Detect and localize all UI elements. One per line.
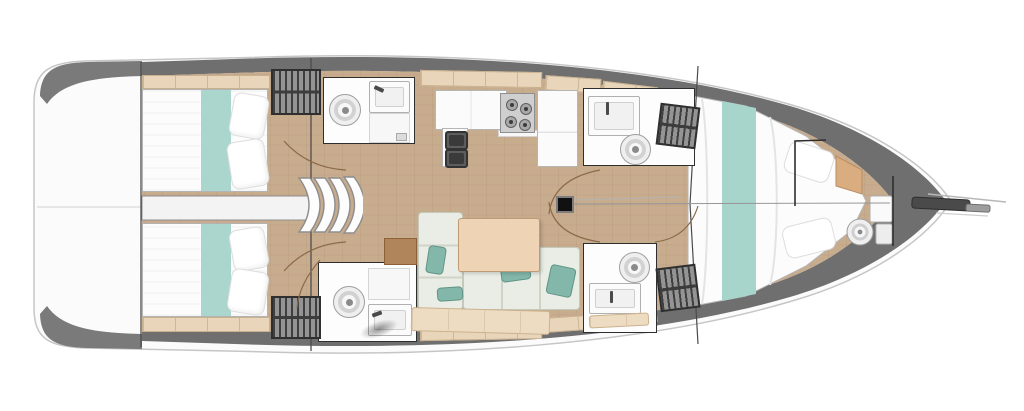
mast-post [557,197,573,212]
centerline [574,203,890,204]
door-swing-arcs [284,141,698,308]
boat-floor-plan [0,0,1024,411]
bow-head-walls [795,140,893,246]
bow-toilet-icon [858,230,863,235]
rigging-line [574,197,680,200]
annotation-layer [0,0,1024,411]
bowsprit [912,194,1006,216]
